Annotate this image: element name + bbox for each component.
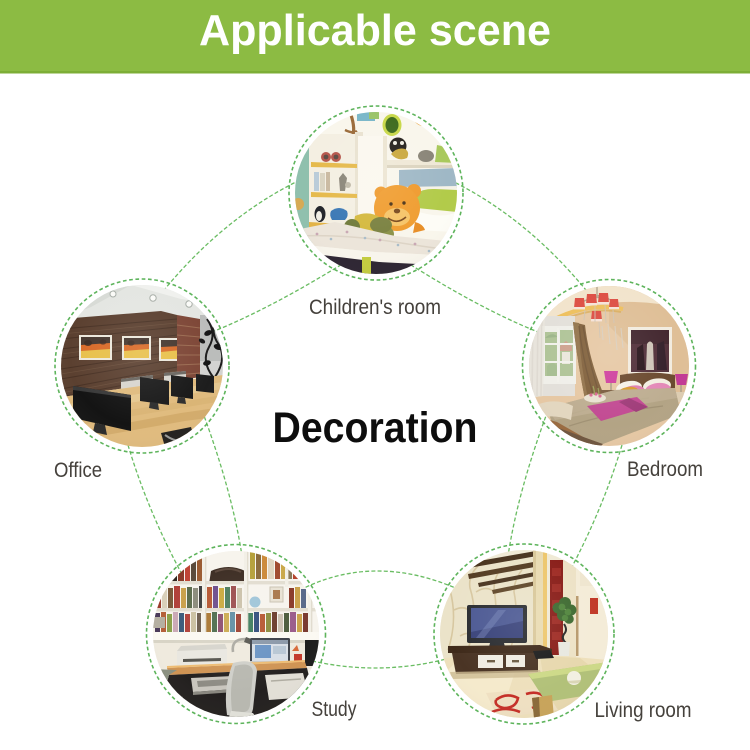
svg-text:Office: Office [54, 459, 102, 482]
svg-text:Children's room: Children's room [309, 296, 441, 319]
svg-text:Study: Study [312, 698, 357, 721]
svg-text:Living room: Living room [595, 699, 692, 722]
svg-text:Decoration: Decoration [273, 404, 478, 452]
svg-text:Applicable scene: Applicable scene [199, 6, 551, 55]
svg-text:Bedroom: Bedroom [627, 458, 703, 481]
